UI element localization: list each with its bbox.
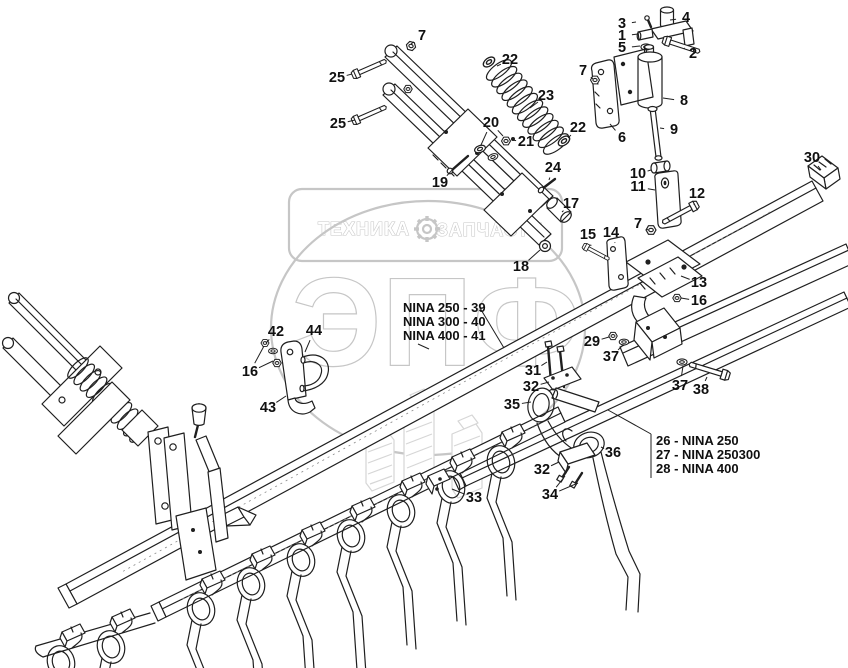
callout-leader <box>705 377 707 381</box>
callout-19-9: 19 <box>432 175 448 191</box>
rod-9 <box>648 107 662 161</box>
callout-leader <box>660 128 664 129</box>
callout-leader <box>276 396 286 402</box>
callout-leader <box>681 298 689 299</box>
callout-leader <box>259 361 273 368</box>
screw-3 <box>645 16 651 27</box>
callout-13-28: 13 <box>691 275 707 291</box>
callout-32-38: 32 <box>534 462 550 478</box>
callout-leader <box>648 170 651 171</box>
washer-37a <box>619 339 629 345</box>
callout-16-43: 16 <box>242 364 258 380</box>
watermark-text-left: ТЕХНИКА <box>318 219 410 239</box>
callout-34-39: 34 <box>542 487 558 503</box>
model-note-line-1: 26 - NINA 250 <box>656 433 739 448</box>
callout-leader <box>549 177 550 180</box>
callout-12-23: 12 <box>689 186 705 202</box>
callout-36-37: 36 <box>605 445 621 461</box>
callout-leader <box>670 19 676 20</box>
callout-35-34: 35 <box>504 397 520 413</box>
tube-tip-18 <box>540 241 551 252</box>
pin-1 <box>637 29 653 40</box>
nut-16a <box>673 294 682 301</box>
parts-diagram: ТЕХНИКА ЗАПЧАСТИ ЭПФ <box>0 0 848 668</box>
callout-leader <box>632 46 640 47</box>
callout-22-2: 22 <box>502 52 518 68</box>
callout-44-42: 44 <box>306 323 322 339</box>
callout-25-4: 25 <box>330 116 346 132</box>
washer-22a <box>482 55 497 69</box>
callout-22-5: 22 <box>570 120 586 136</box>
callout-31-32: 31 <box>525 363 541 379</box>
callout-21-7: 21 <box>518 134 534 150</box>
spring-arm <box>3 293 159 455</box>
callout-43-44: 43 <box>260 400 276 416</box>
callout-17-10: 17 <box>563 196 579 212</box>
callout-24-8: 24 <box>545 160 561 176</box>
callout-16-29: 16 <box>691 293 707 309</box>
washer-37b <box>677 359 687 365</box>
callout-7-17: 7 <box>579 63 587 79</box>
callout-8-18: 8 <box>680 93 688 109</box>
clevis-10 <box>651 161 670 173</box>
callout-6-20: 6 <box>618 130 626 146</box>
callout-20-6: 20 <box>483 115 499 131</box>
plate-6 <box>592 60 620 128</box>
callout-11-22: 11 <box>630 179 645 195</box>
washer-42 <box>269 348 278 353</box>
size-note-line-2: NINA 300 - 40 <box>403 314 486 329</box>
tine-36-assembly <box>557 428 640 612</box>
nut-7b <box>591 76 600 84</box>
nut-16b <box>273 359 282 366</box>
parts-diagram-page: ТЕХНИКА ЗАПЧАСТИ ЭПФ <box>0 0 848 668</box>
nut-29 <box>609 332 618 339</box>
bolt-25b <box>351 103 388 126</box>
callout-37-35: 37 <box>672 378 688 394</box>
callout-leader <box>498 130 503 136</box>
callout-7-25: 7 <box>634 216 642 232</box>
callout-25-1: 25 <box>329 70 345 86</box>
callout-leader <box>512 140 516 141</box>
callout-leader <box>648 189 655 190</box>
callout-37-31: 37 <box>603 349 619 365</box>
callout-leader <box>602 337 609 339</box>
callout-5-15: 5 <box>618 40 626 56</box>
size-note-line-3: NINA 400 - 41 <box>403 328 486 343</box>
callout-29-30: 29 <box>584 334 600 350</box>
callout-leader <box>255 346 264 363</box>
callout-leader <box>497 64 501 66</box>
bolt-25a <box>351 57 388 80</box>
callout-leader <box>522 402 531 403</box>
size-note-line-1: NINA 250 - 39 <box>403 300 486 315</box>
callout-2-16: 2 <box>689 46 697 62</box>
callout-38-36: 38 <box>693 382 709 398</box>
callout-42-41: 42 <box>268 324 284 340</box>
callout-leader <box>632 22 636 23</box>
callout-9-19: 9 <box>670 122 678 138</box>
callout-leader <box>663 98 674 100</box>
model-note-line-2: 27 - NINA 250300 <box>656 447 760 462</box>
nut-on-tube <box>404 85 413 92</box>
tine-bar-stub <box>35 613 155 657</box>
model-note-line-3: 28 - NINA 400 <box>656 461 739 476</box>
plate-14 <box>607 237 628 290</box>
nut-7a <box>405 41 416 51</box>
callout-15-26: 15 <box>580 227 596 243</box>
callout-30-24: 30 <box>804 150 820 166</box>
callout-33-40: 33 <box>466 490 482 506</box>
callout-18-11: 18 <box>513 259 529 275</box>
callout-4-13: 4 <box>682 10 690 26</box>
model-note: 26 - NINA 250 27 - NINA 250300 28 - NINA… <box>608 410 760 478</box>
bolt-15 <box>582 242 611 262</box>
callout-32-33: 32 <box>523 379 539 395</box>
callout-leader <box>551 462 559 466</box>
callout-14-27: 14 <box>603 225 619 241</box>
callout-23-3: 23 <box>538 88 554 104</box>
callout-7-0: 7 <box>418 28 426 44</box>
top-right-assembly <box>582 7 702 302</box>
callout-leader <box>347 74 352 75</box>
